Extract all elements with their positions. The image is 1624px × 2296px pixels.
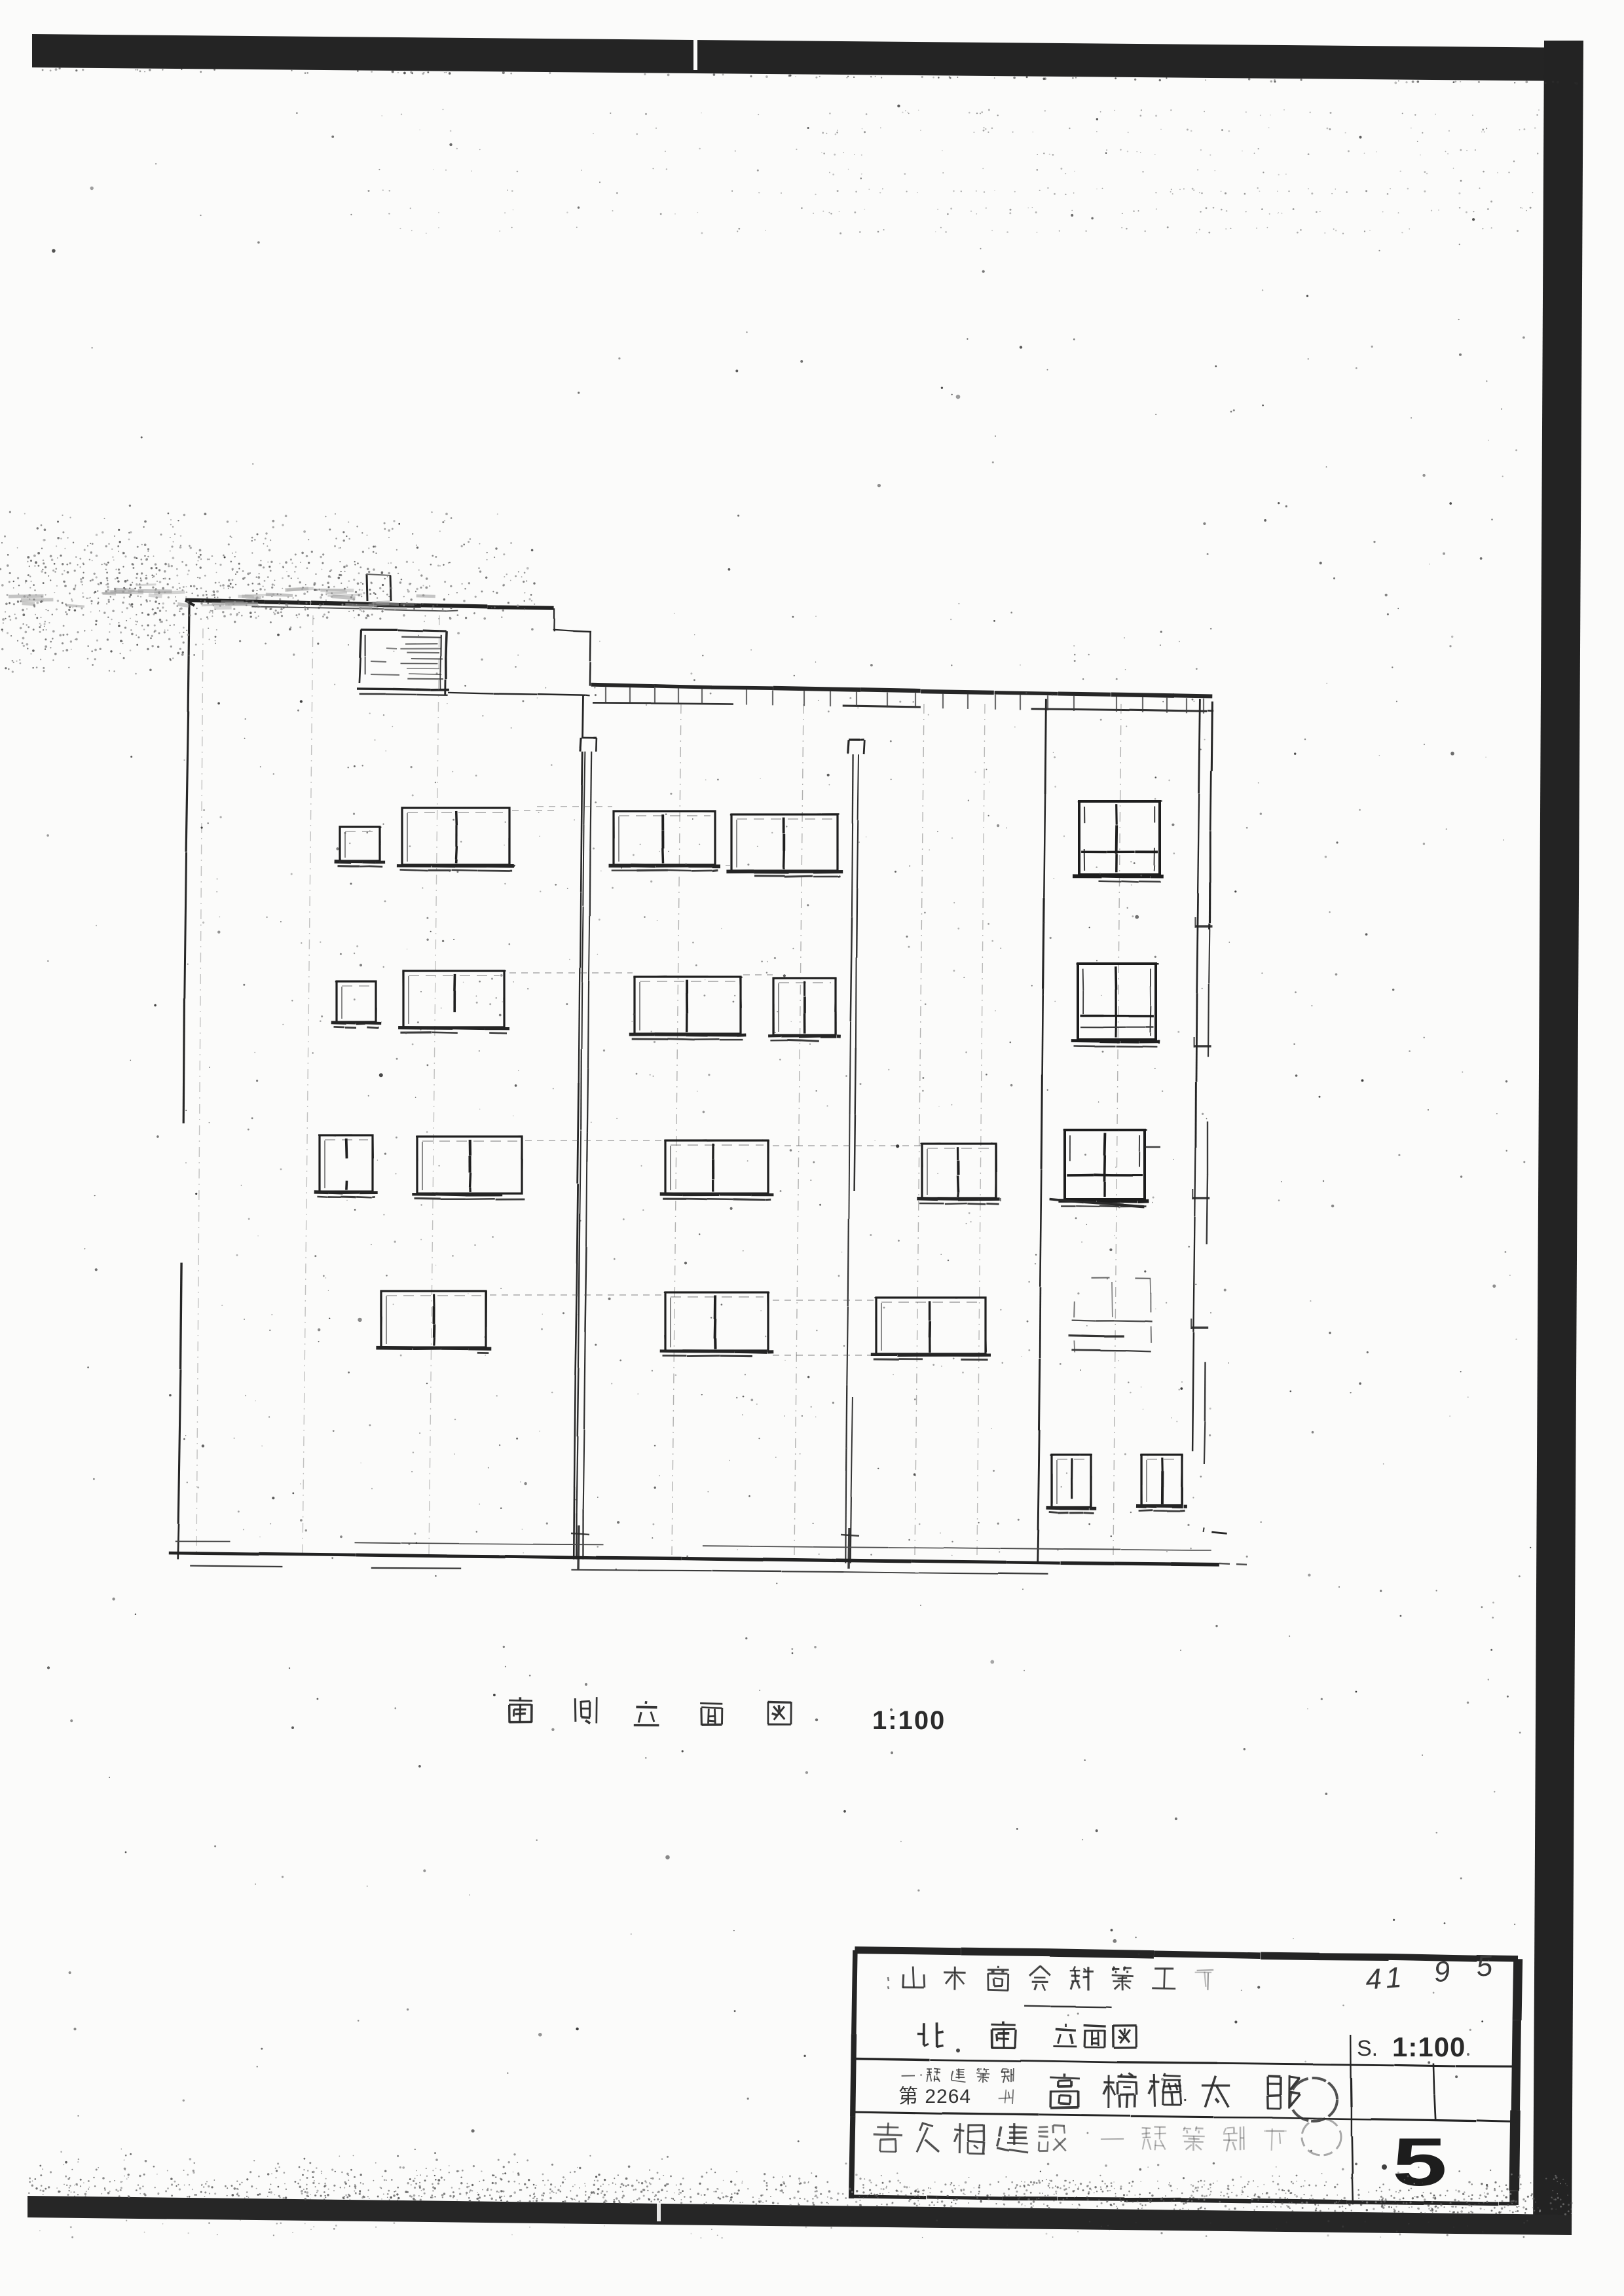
svg-text:5: 5 — [1475, 1950, 1494, 1983]
svg-text:1:100: 1:100 — [872, 1706, 946, 1735]
svg-text:5: 5 — [1392, 2124, 1447, 2200]
svg-text:第 2264: 第 2264 — [898, 2086, 971, 2107]
svg-text:9: 9 — [1433, 1956, 1451, 1989]
svg-text:S.: S. — [1357, 2036, 1378, 2061]
svg-text:41: 41 — [1365, 1961, 1407, 1995]
svg-text:1:100: 1:100 — [1392, 2032, 1466, 2062]
